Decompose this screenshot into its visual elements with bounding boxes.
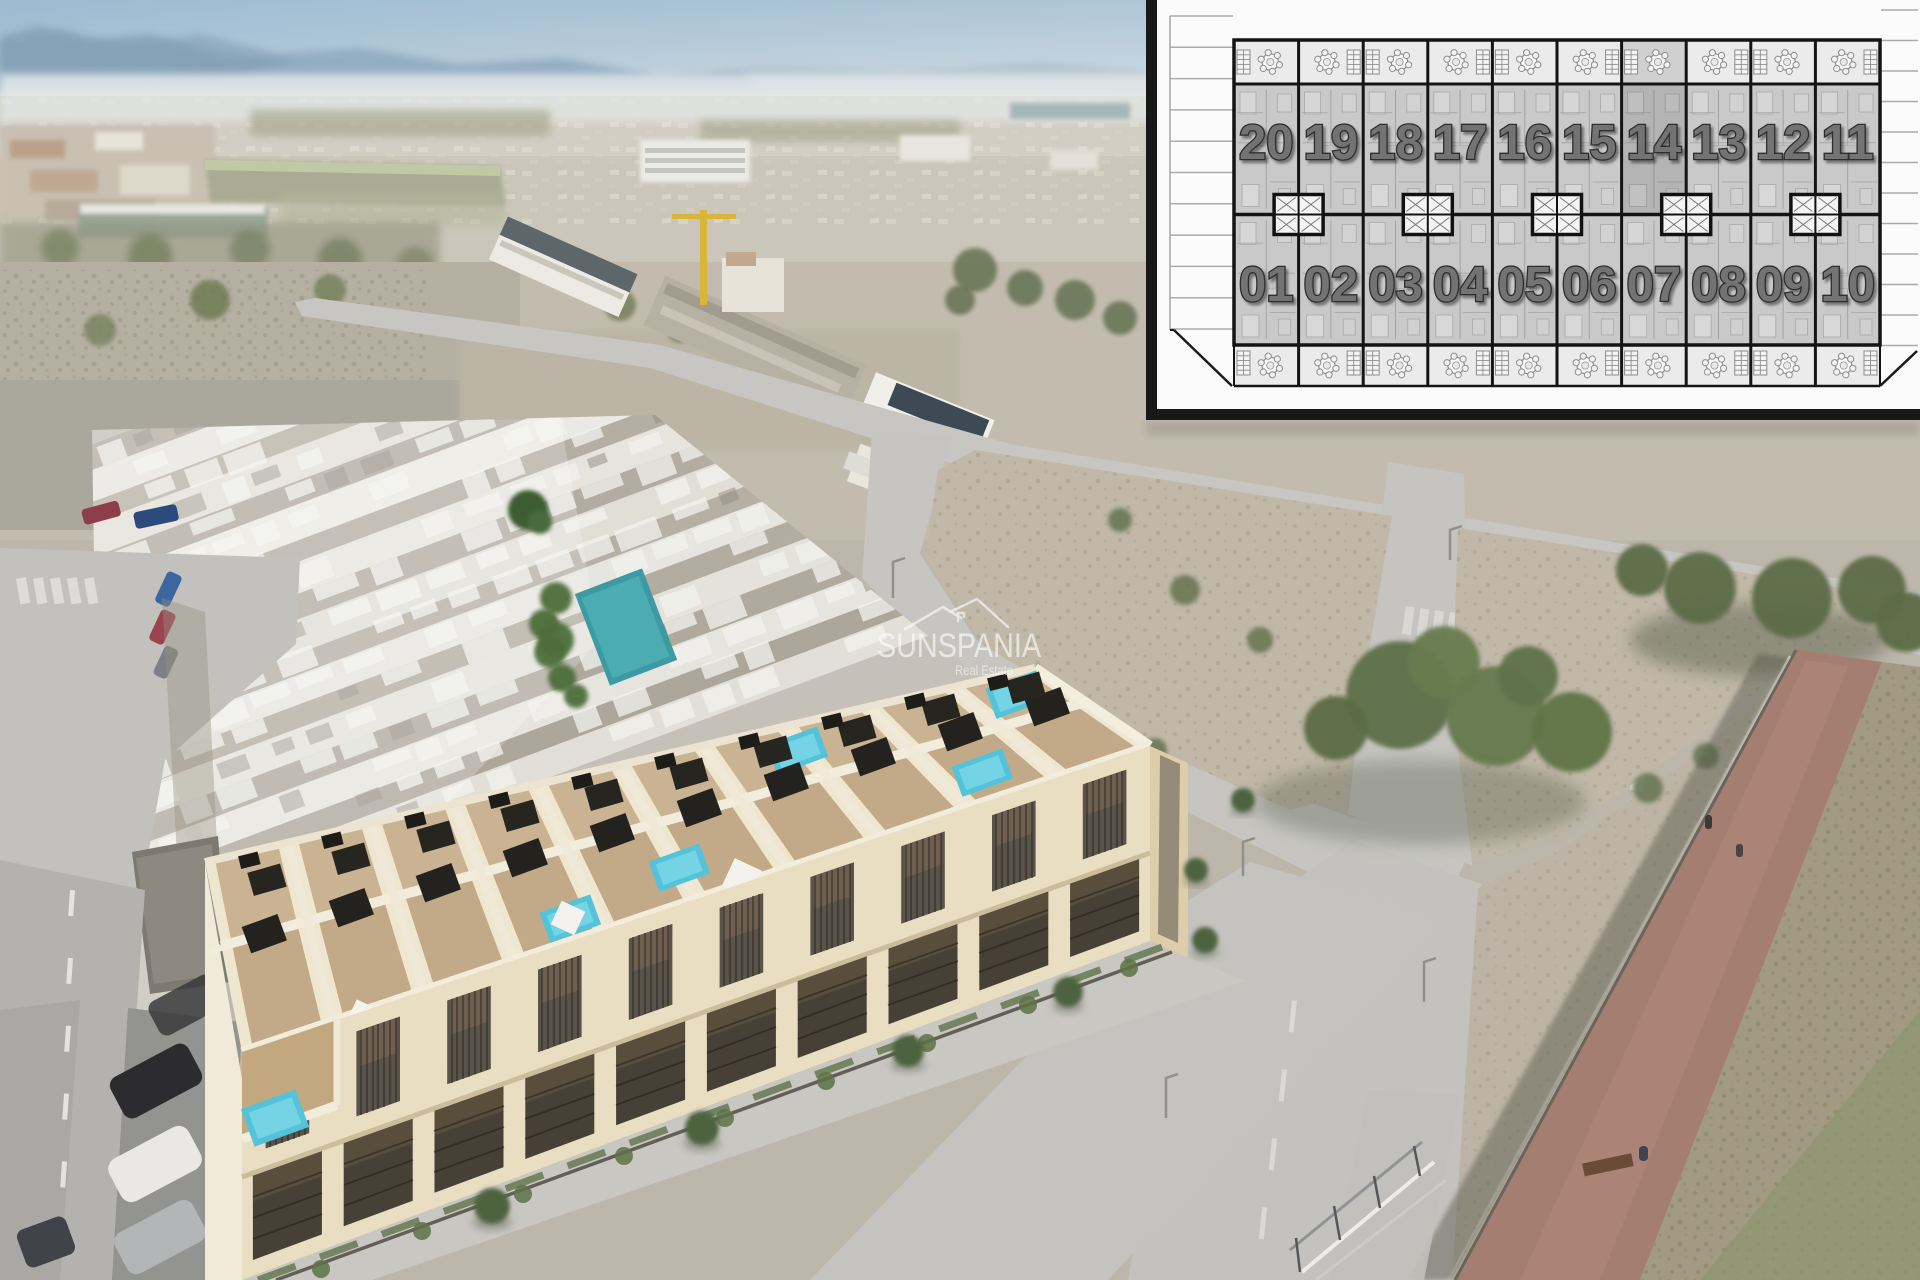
svg-text:17: 17: [1433, 116, 1488, 170]
svg-text:19: 19: [1304, 116, 1359, 170]
svg-text:06: 06: [1562, 258, 1617, 312]
svg-text:09: 09: [1756, 258, 1811, 312]
svg-text:12: 12: [1756, 116, 1811, 170]
svg-text:10: 10: [1820, 258, 1875, 312]
svg-text:01: 01: [1239, 258, 1294, 312]
svg-text:13: 13: [1691, 116, 1746, 170]
svg-text:SUNSPANIA: SUNSPANIA: [877, 627, 1041, 665]
svg-text:16: 16: [1497, 116, 1552, 170]
svg-text:18: 18: [1368, 116, 1423, 170]
svg-text:20: 20: [1239, 116, 1294, 170]
svg-text:15: 15: [1562, 116, 1617, 170]
svg-text:Real Estate: Real Estate: [955, 662, 1013, 678]
svg-text:07: 07: [1627, 258, 1682, 312]
svg-text:14: 14: [1627, 116, 1682, 170]
svg-text:03: 03: [1368, 258, 1423, 312]
svg-text:11: 11: [1822, 116, 1874, 170]
svg-text:04: 04: [1433, 258, 1488, 312]
svg-text:05: 05: [1497, 258, 1552, 312]
svg-text:02: 02: [1304, 258, 1359, 312]
svg-text:08: 08: [1691, 258, 1746, 312]
